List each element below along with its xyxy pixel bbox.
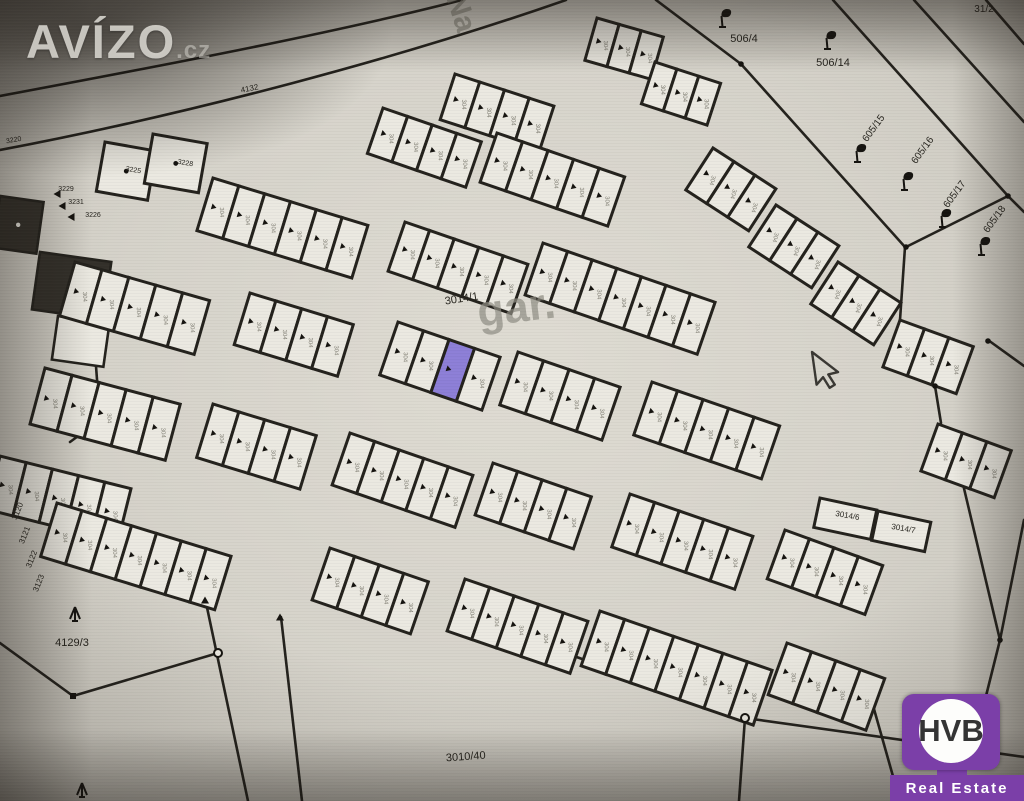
flag-symbol-icon (824, 31, 836, 49)
flag-symbol-icon (719, 9, 731, 27)
garage-row: 304304304304304 (332, 433, 473, 527)
watermark-suffix: .cz (176, 37, 211, 64)
cell-number: 304 (402, 479, 408, 490)
parcel-label: 31/2 (974, 4, 994, 15)
cell-number: 304 (731, 558, 737, 569)
cell-number: 304 (347, 247, 353, 258)
cell-number: 304 (658, 532, 664, 543)
hvb-logo: HVB Real Estate (890, 691, 1024, 801)
cell-number: 304 (135, 307, 141, 318)
garage-row: 304304304304 (234, 293, 353, 376)
parcel-label: 506/4 (730, 33, 758, 45)
cell-number: 304 (602, 40, 608, 51)
parcel-label: 605/15 (861, 113, 888, 145)
cell-number: 304 (861, 584, 867, 595)
garage-row: 304304304304304304304 (41, 503, 231, 610)
cell-number: 304 (863, 699, 869, 710)
boundary-line (988, 340, 1024, 366)
boundary-line (935, 386, 941, 423)
cell-number: 304 (838, 690, 844, 701)
hvb-logo-text: HVB (918, 713, 983, 749)
cell-number: 304 (656, 412, 662, 423)
garage-row: 304304304304304 (612, 494, 753, 589)
hvb-logo-band: Real Estate (890, 775, 1024, 801)
cell-number: 304 (646, 53, 652, 64)
cell-number: 304 (427, 488, 433, 499)
cell-number: 304 (941, 451, 947, 462)
tree-symbol-icon (77, 783, 87, 797)
cell-number: 304 (788, 558, 794, 569)
cell-number: 304 (952, 365, 958, 376)
cell-number: 304 (402, 352, 408, 363)
cell-number: 304 (189, 323, 195, 334)
cell-number: 304 (378, 471, 384, 482)
cell-number: 304 (633, 524, 639, 535)
cell-number: 304 (552, 179, 558, 190)
garage-row: 304304304 (921, 424, 1011, 498)
cell-number: 304 (732, 438, 738, 449)
cell-number: 304 (478, 378, 484, 389)
cell-number: 304 (493, 617, 499, 628)
cell-number: 304 (703, 99, 709, 110)
cell-number: 304 (707, 549, 713, 560)
cell-number: 304 (517, 625, 523, 636)
cell-number: 304 (218, 434, 224, 445)
cell-number: 304 (928, 356, 934, 367)
garage-row: 304304304304 (500, 352, 620, 440)
survey-circle (214, 649, 222, 657)
cell-number: 304 (159, 428, 166, 439)
cell-number: 304 (437, 151, 443, 162)
parcel-label: 3229 (58, 186, 74, 193)
parcel-label: 3123 (31, 573, 46, 593)
watermark-text: AVÍZO (26, 15, 176, 68)
cell-number: 304 (244, 442, 250, 453)
cell-number: 304 (333, 345, 339, 356)
cell-number: 304 (659, 85, 665, 96)
garage-row: 304304304304 (767, 530, 883, 614)
cell-number: 304 (682, 541, 688, 552)
cell-number: 304 (681, 92, 687, 103)
cell-number: 304 (509, 116, 515, 127)
garage-row: 304304304 (811, 262, 901, 345)
cell-number: 304 (407, 603, 413, 614)
parcel-label: gar. (474, 279, 558, 337)
garage-row: 304304304304304304304 (581, 611, 772, 725)
cell-number: 304 (627, 650, 633, 661)
cell-number: 304 (652, 659, 658, 670)
cell-number: 304 (545, 509, 551, 520)
cell-number: 304 (750, 693, 756, 704)
cell-number: 304 (321, 239, 327, 250)
garage-row: 304304304304 (768, 643, 885, 730)
cell-number: 304 (105, 413, 112, 424)
boundary-line (900, 247, 905, 320)
garage-row: 304304304304 (475, 463, 591, 549)
parcel-label: 3226 (85, 212, 101, 219)
cell-number: 304 (644, 306, 650, 317)
watermark-avizo: AVÍZO.cz (26, 14, 211, 69)
cell-number: 304 (78, 406, 85, 417)
cell-number: 304 (210, 578, 216, 589)
boundary-line (833, 0, 1008, 196)
cell-number: 304 (218, 207, 224, 218)
cell-number: 304 (701, 676, 707, 687)
hvb-logo-subtext: Real Estate (906, 780, 1009, 797)
survey-triangle (276, 614, 284, 621)
cell-number: 304 (86, 540, 92, 551)
cell-number: 304 (244, 215, 250, 226)
boundary-line (281, 617, 302, 801)
cell-number: 304 (501, 161, 507, 172)
cell-number: 304 (269, 450, 275, 461)
cell-number: 304 (461, 159, 467, 170)
boundary-line (914, 0, 1024, 122)
cell-number: 304 (812, 567, 818, 578)
boundary-line (205, 598, 248, 801)
cell-number: 304 (542, 634, 548, 645)
cell-number: 304 (161, 563, 167, 574)
garage-row: 304304304 (686, 148, 776, 231)
parcel-label: 3220 (5, 136, 22, 146)
cell-number: 304 (295, 457, 301, 468)
cell-number: 304 (966, 460, 972, 471)
parcel-label: 3121 (17, 525, 32, 545)
garage-row: 304304304304304304 (197, 178, 368, 278)
cell-number: 304 (333, 577, 339, 588)
cell-number: 304 (451, 496, 457, 507)
cell-number: 304 (814, 681, 820, 692)
garage-row: 304304304304304 (634, 382, 780, 479)
flag-symbol-icon (901, 172, 913, 190)
cell-number: 304 (566, 642, 572, 653)
cell-number: 304 (624, 47, 630, 58)
cell-number: 304 (295, 231, 301, 242)
cell-number: 304 (573, 400, 579, 411)
cell-number: 304 (132, 420, 139, 431)
survey-point (985, 338, 991, 344)
cell-number: 304 (603, 642, 609, 653)
cell-number: 304 (33, 491, 40, 502)
boundary-line (1000, 520, 1024, 640)
cell-number: 304 (669, 315, 675, 326)
cell-number: 304 (694, 323, 700, 334)
garage-row: 304304304304304 (480, 133, 625, 226)
cell-number: 304 (387, 134, 393, 145)
cell-number: 304 (521, 501, 527, 512)
parcel-label: 3231 (68, 199, 84, 206)
cell-number: 304 (409, 250, 415, 261)
cadastral-map-canvas[interactable]: 3043043043043043043043043043043043043043… (0, 0, 1024, 801)
parcel-label: 605/17 (942, 179, 969, 211)
cell-number: 304 (281, 330, 287, 341)
cell-number: 304 (111, 548, 117, 559)
boundary-line (0, 643, 218, 696)
cell-number: 304 (458, 267, 464, 278)
cell-number: 304 (81, 292, 87, 303)
parcel-label: 506/14 (816, 57, 850, 69)
cell-number: 304 (837, 576, 843, 587)
cell-number: 304 (789, 672, 795, 683)
boundary-line (962, 480, 1000, 700)
cell-number: 304 (758, 447, 764, 458)
boundary-line (1008, 196, 1024, 212)
flag-symbol-icon (978, 237, 990, 255)
cell-number: 304 (681, 421, 687, 432)
cell-number: 304 (108, 300, 114, 311)
cell-number: 304 (571, 281, 577, 292)
cell-number: 304 (903, 347, 909, 358)
listing-photo: 3043043043043043043043043043043043043043… (0, 0, 1024, 801)
hvb-logo-circle: HVB (919, 699, 983, 763)
building-outline (0, 196, 44, 254)
cell-number: 304 (307, 338, 313, 349)
cell-number: 304 (496, 492, 502, 503)
cell-number: 304 (620, 298, 626, 309)
parcel-box[interactable] (144, 134, 207, 193)
cell-number: 304 (482, 275, 488, 286)
cell-number: 304 (412, 142, 418, 153)
hvb-logo-card: HVB (902, 694, 1000, 770)
boundary-line (739, 718, 745, 801)
cell-number: 304 (6, 485, 13, 496)
cell-number: 304 (676, 667, 682, 678)
cell-number: 304 (485, 108, 491, 119)
garage-row: 304304304304 (197, 404, 317, 489)
cell-number: 304 (595, 289, 601, 300)
parcel-label: 4129/3 (55, 637, 89, 649)
cell-number: 304 (603, 196, 609, 207)
cell-number: 304 (578, 187, 584, 198)
cell-number: 304 (51, 399, 58, 410)
survey-point (903, 244, 909, 250)
survey-square (70, 693, 76, 699)
cell-number: 304 (353, 462, 359, 473)
cell-number: 304 (382, 594, 388, 605)
cell-number: 304 (358, 586, 364, 597)
cell-number: 304 (61, 533, 67, 544)
parcel-label: 605/16 (910, 135, 937, 167)
cell-number: 304 (162, 315, 168, 326)
tree-symbol-icon (70, 607, 80, 621)
cell-number: 304 (707, 430, 713, 441)
survey-point (932, 383, 938, 389)
garage-row: 304304304304 (312, 548, 428, 634)
garage-row: 304304304 (749, 205, 839, 288)
cell-number: 304 (433, 258, 439, 269)
garage-row: 304304304 (883, 320, 973, 394)
cell-number: 304 (598, 408, 604, 419)
survey-point (1005, 193, 1011, 199)
garage-row: 304304304304304 (447, 579, 588, 673)
survey-point (997, 637, 1003, 643)
garage-row: 304304304 (641, 62, 720, 125)
cell-number: 304 (255, 322, 261, 333)
mouse-cursor-icon (812, 349, 840, 390)
cell-number: 304 (570, 518, 576, 529)
cell-number: 304 (427, 361, 433, 372)
cell-number: 304 (725, 684, 731, 695)
flag-symbol-icon (854, 144, 866, 162)
cell-number: 304 (990, 469, 996, 480)
survey-point (738, 61, 744, 67)
cell-number: 304 (522, 382, 528, 393)
survey-triangle (68, 213, 75, 221)
cell-number: 304 (185, 571, 191, 582)
cell-number: 304 (136, 555, 142, 566)
parcel-label: 3122 (24, 549, 39, 569)
parcel-label: 3010/40 (446, 750, 487, 765)
cell-number: 304 (534, 124, 540, 135)
survey-triangle (59, 202, 66, 210)
garage-row: 304304304304304 (30, 368, 180, 460)
cell-number: 304 (547, 391, 553, 402)
cell-number: 304 (527, 170, 533, 181)
cell-number: 304 (460, 100, 466, 111)
cell-number: 304 (270, 223, 276, 234)
cell-number: 304 (468, 608, 474, 619)
survey-circle (741, 714, 749, 722)
